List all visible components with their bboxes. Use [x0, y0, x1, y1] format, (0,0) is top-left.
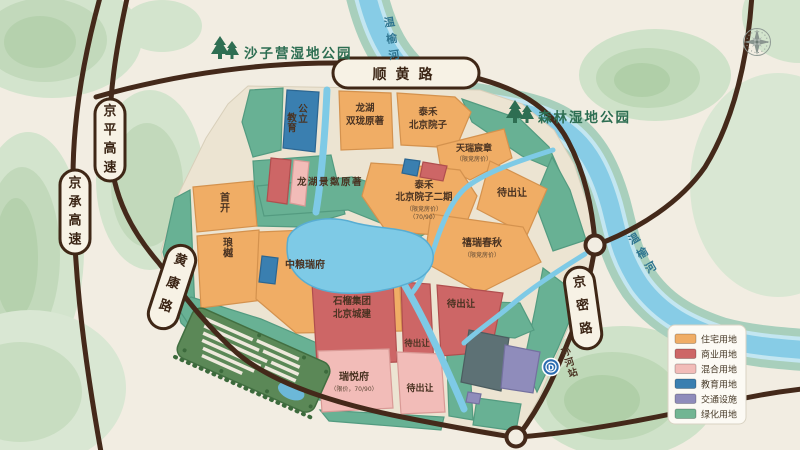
legend-swatch-green: [675, 409, 696, 419]
label-taihe-yuanzi2: 北京院子二期: [395, 191, 452, 203]
label-taihe-yuanzi2: 泰禾: [413, 179, 434, 191]
small-commercial-parcel: [267, 158, 291, 204]
label-xirui: 禧瑞春秋: [462, 236, 503, 249]
small-education-parcel: [259, 256, 278, 284]
road-junction: [507, 428, 526, 447]
legend-row: 商业用地: [675, 349, 737, 361]
legend-label-education: 教育用地: [701, 379, 737, 391]
map-legend: 住宅用地 商业用地 混合用地 教育用地 交通设施 绿化用地: [668, 325, 746, 424]
park-label: 森林湿地公园: [538, 109, 631, 126]
label-shoukai: 首开: [220, 191, 230, 215]
label-taihe-yuanzi: 泰禾: [417, 106, 438, 118]
legend-swatch-mixed: [675, 364, 696, 374]
small-commercial-parcel: [420, 162, 447, 181]
label-shiliu: 石榴集团: [332, 295, 371, 307]
small-education-parcel: [402, 159, 420, 176]
road-junction: [586, 236, 605, 255]
label-daichurang-mid: 待出让: [403, 338, 430, 349]
road-label-text: 顺黄路: [373, 66, 442, 83]
legend-label-mixed: 混合用地: [701, 364, 737, 376]
parcel-daichurang-s: [397, 352, 445, 414]
legend-label-transport: 交通设施: [701, 394, 737, 406]
legend-row: 交通设施: [675, 394, 737, 406]
parcel-transport-small: [466, 392, 481, 404]
legend-swatch-residential: [675, 334, 696, 344]
road-label-shunhuang: 顺黄路: [333, 58, 479, 88]
label-tianrui: 天瑞宸章: [456, 142, 492, 154]
note-tianrui: （限竞房价）: [456, 155, 492, 163]
legend-row: 混合用地: [675, 364, 737, 376]
legend-row: 绿化用地: [675, 409, 737, 421]
real-estate-map: 顺黄路 京平高速 京承高速 黄康路 京密路 公立 教育 龙湖 双珑原著 泰禾 北…: [0, 0, 800, 450]
subway-logo-glyph: D: [548, 364, 554, 373]
legend-label-commercial: 商业用地: [701, 349, 737, 361]
legend-label-green: 绿化用地: [701, 409, 737, 421]
label-langyue: 琅樾: [223, 236, 234, 260]
label-zhongliang: 中粮瑞府: [285, 258, 325, 271]
legend-row: 住宅用地: [675, 334, 737, 346]
label-daichurang-e: 待出让: [447, 298, 476, 310]
note-taihe-yuanzi2: （70/90）: [409, 214, 438, 221]
label-longhu-shuanglong: 双珑原著: [345, 115, 385, 127]
compass-icon: [744, 29, 771, 56]
note-xirui: （限竞房价）: [464, 251, 500, 259]
label-public-education: 教育: [286, 112, 297, 134]
parcel-transport: [501, 345, 540, 393]
label-ruiyue: 瑞悦府: [339, 370, 369, 383]
legend-swatch-commercial: [675, 349, 696, 359]
note-ruiyue: （限价，70/90）: [330, 385, 377, 393]
label-taihe-yuanzi: 北京院子: [409, 119, 448, 131]
legend-row: 教育用地: [675, 379, 737, 391]
road-label-jingcheng: 京承高速: [60, 170, 90, 254]
label-longhu-jinglin: 龙湖景粼原著: [296, 176, 363, 188]
label-longhu-shuanglong: 龙湖: [354, 102, 375, 114]
legend-swatch-education: [675, 379, 696, 389]
road-label-jingping: 京平高速: [95, 99, 125, 181]
note-taihe-yuanzi2: （限竞房价）: [406, 205, 442, 213]
label-daichurang-s: 待出让: [406, 382, 433, 394]
label-shiliu: 北京城建: [333, 308, 372, 320]
label-public-education: 公立: [298, 104, 308, 125]
park-label: 沙子营湿地公园: [244, 45, 353, 62]
legend-label-residential: 住宅用地: [701, 334, 737, 346]
legend-swatch-transport: [675, 394, 696, 404]
label-daichurang-ne: 待出让: [497, 186, 527, 199]
